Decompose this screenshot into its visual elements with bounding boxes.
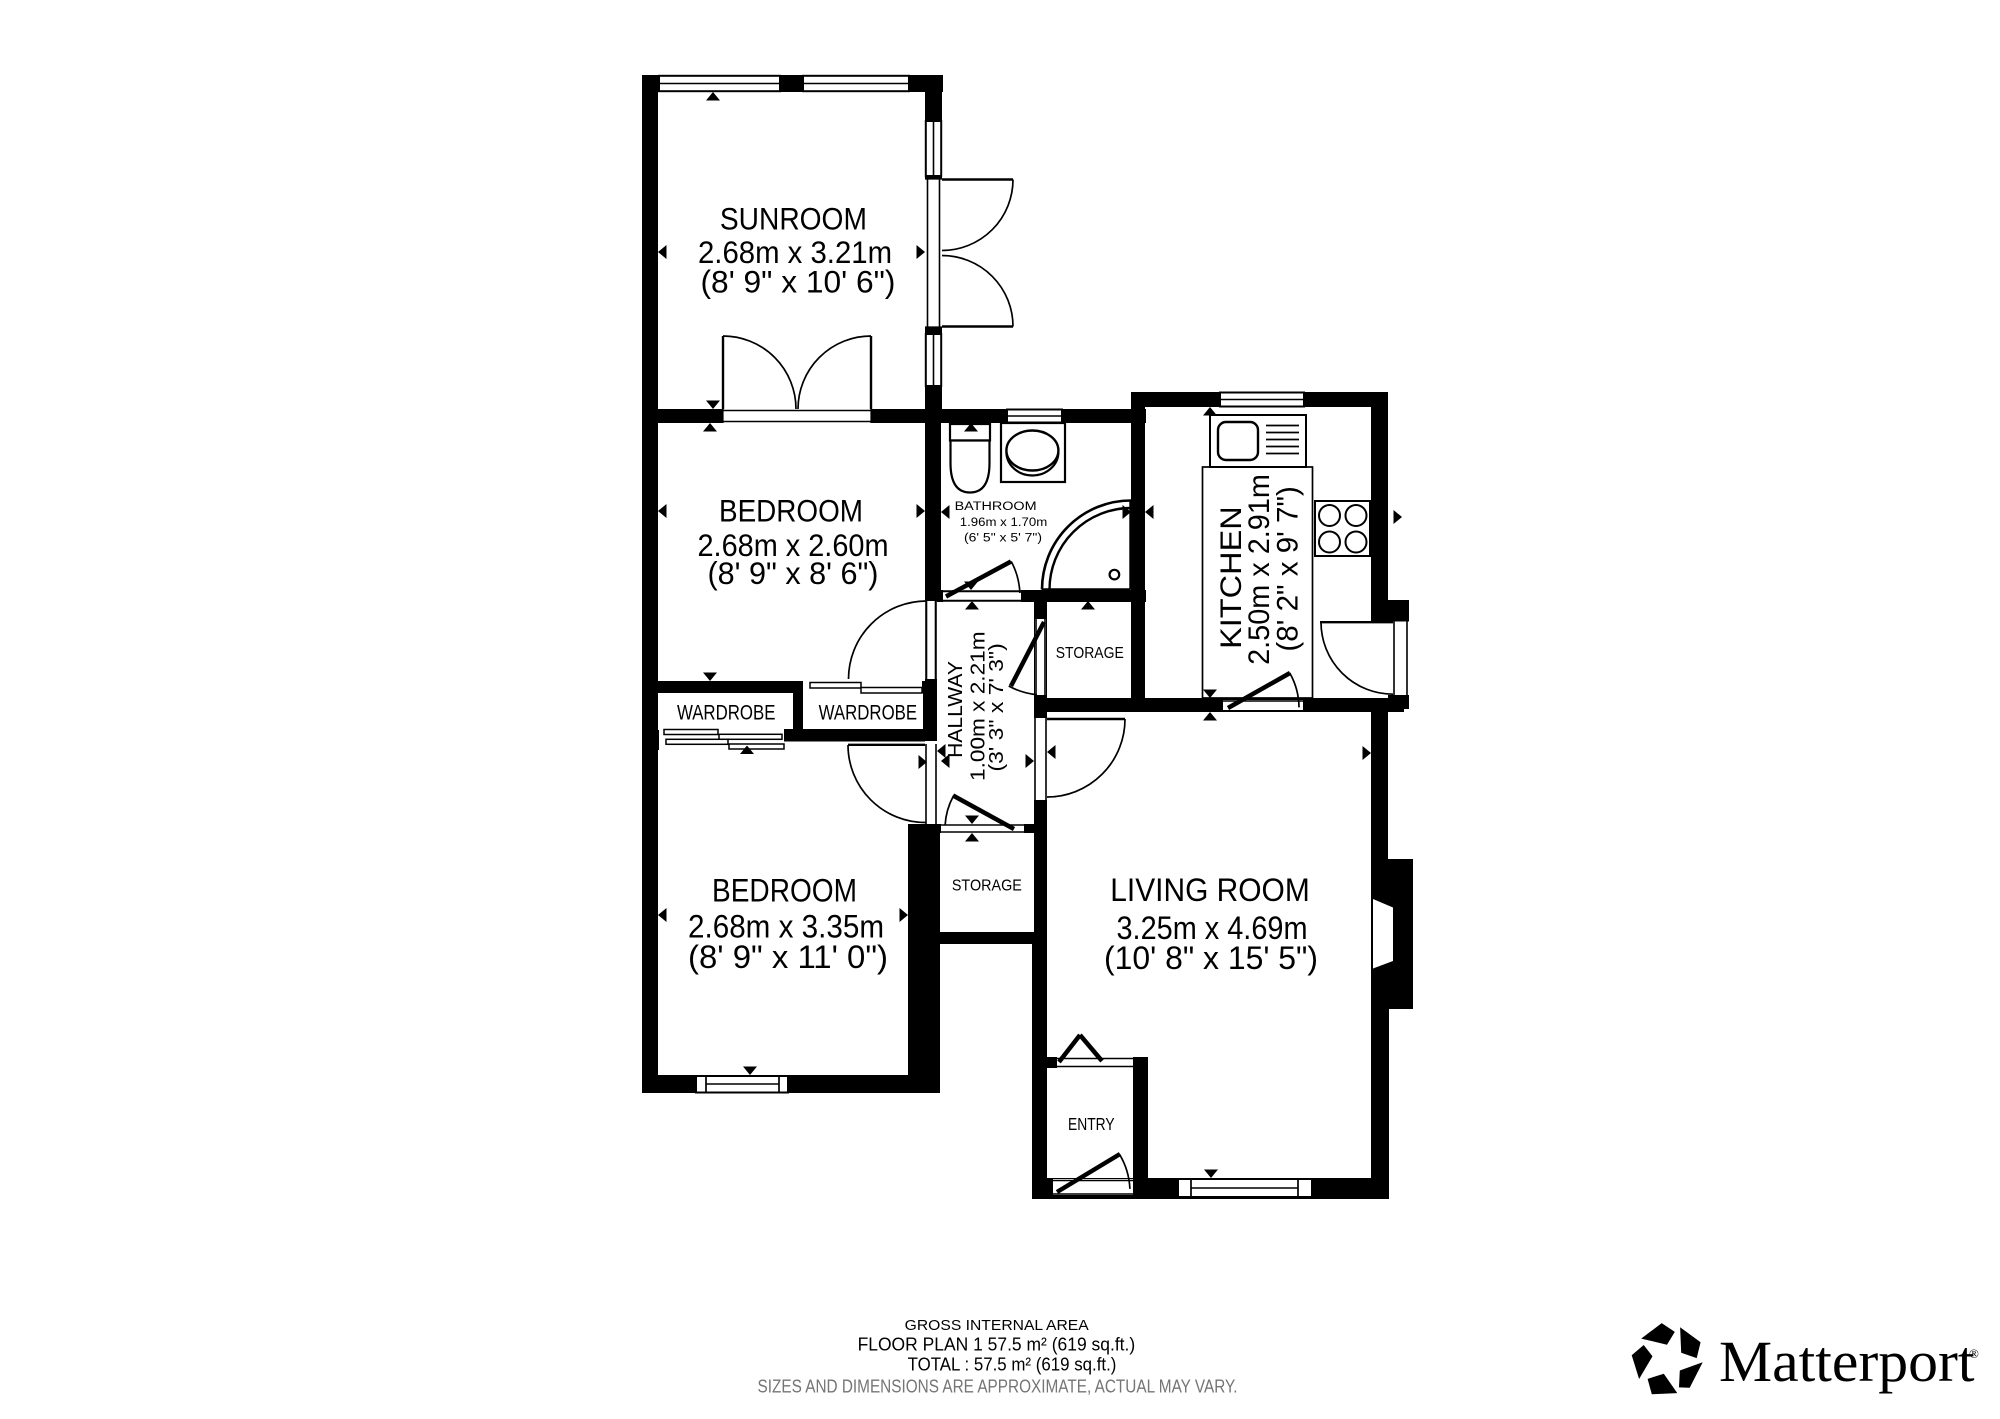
svg-text:(8' 9" x 11' 0"): (8' 9" x 11' 0") bbox=[688, 939, 888, 975]
svg-text:FLOOR PLAN 1 57.5 m² (619 sq.f: FLOOR PLAN 1 57.5 m² (619 sq.ft.) bbox=[858, 1334, 1136, 1355]
svg-text:BEDROOM: BEDROOM bbox=[712, 872, 857, 908]
svg-text:WARDROBE: WARDROBE bbox=[677, 702, 776, 725]
svg-text:(3' 3" x 7' 3"): (3' 3" x 7' 3") bbox=[986, 643, 1008, 771]
svg-text:(6' 5" x 5' 7"): (6' 5" x 5' 7") bbox=[964, 533, 1042, 545]
svg-text:GROSS INTERNAL AREA: GROSS INTERNAL AREA bbox=[905, 1318, 1089, 1334]
svg-text:Matterport: Matterport bbox=[1719, 1329, 1975, 1394]
svg-text:TOTAL : 57.5 m² (619 sq.ft.): TOTAL : 57.5 m² (619 sq.ft.) bbox=[908, 1354, 1117, 1375]
svg-text:WARDROBE: WARDROBE bbox=[819, 702, 918, 725]
svg-text:®: ® bbox=[1969, 1346, 1979, 1361]
svg-text:BEDROOM: BEDROOM bbox=[719, 493, 863, 529]
svg-text:HALLWAY: HALLWAY bbox=[945, 661, 967, 758]
svg-text:(8' 2" x 9' 7"): (8' 2" x 9' 7") bbox=[1271, 486, 1304, 651]
svg-text:SIZES AND DIMENSIONS ARE APPRO: SIZES AND DIMENSIONS ARE APPROXIMATE, AC… bbox=[758, 1377, 1238, 1398]
svg-text:1.96m x 1.70m: 1.96m x 1.70m bbox=[960, 517, 1048, 529]
svg-text:STORAGE: STORAGE bbox=[952, 878, 1022, 895]
svg-text:SUNROOM: SUNROOM bbox=[720, 201, 867, 237]
svg-text:STORAGE: STORAGE bbox=[1056, 645, 1124, 662]
svg-text:(8' 9" x 10' 6"): (8' 9" x 10' 6") bbox=[701, 264, 896, 300]
svg-text:(10' 8" x 15' 5"): (10' 8" x 15' 5") bbox=[1104, 940, 1318, 976]
svg-text:LIVING ROOM: LIVING ROOM bbox=[1110, 872, 1310, 908]
svg-text:(8' 9" x 8' 6"): (8' 9" x 8' 6") bbox=[708, 555, 879, 591]
svg-text:ENTRY: ENTRY bbox=[1068, 1114, 1115, 1134]
svg-text:BATHROOM: BATHROOM bbox=[955, 499, 1037, 513]
